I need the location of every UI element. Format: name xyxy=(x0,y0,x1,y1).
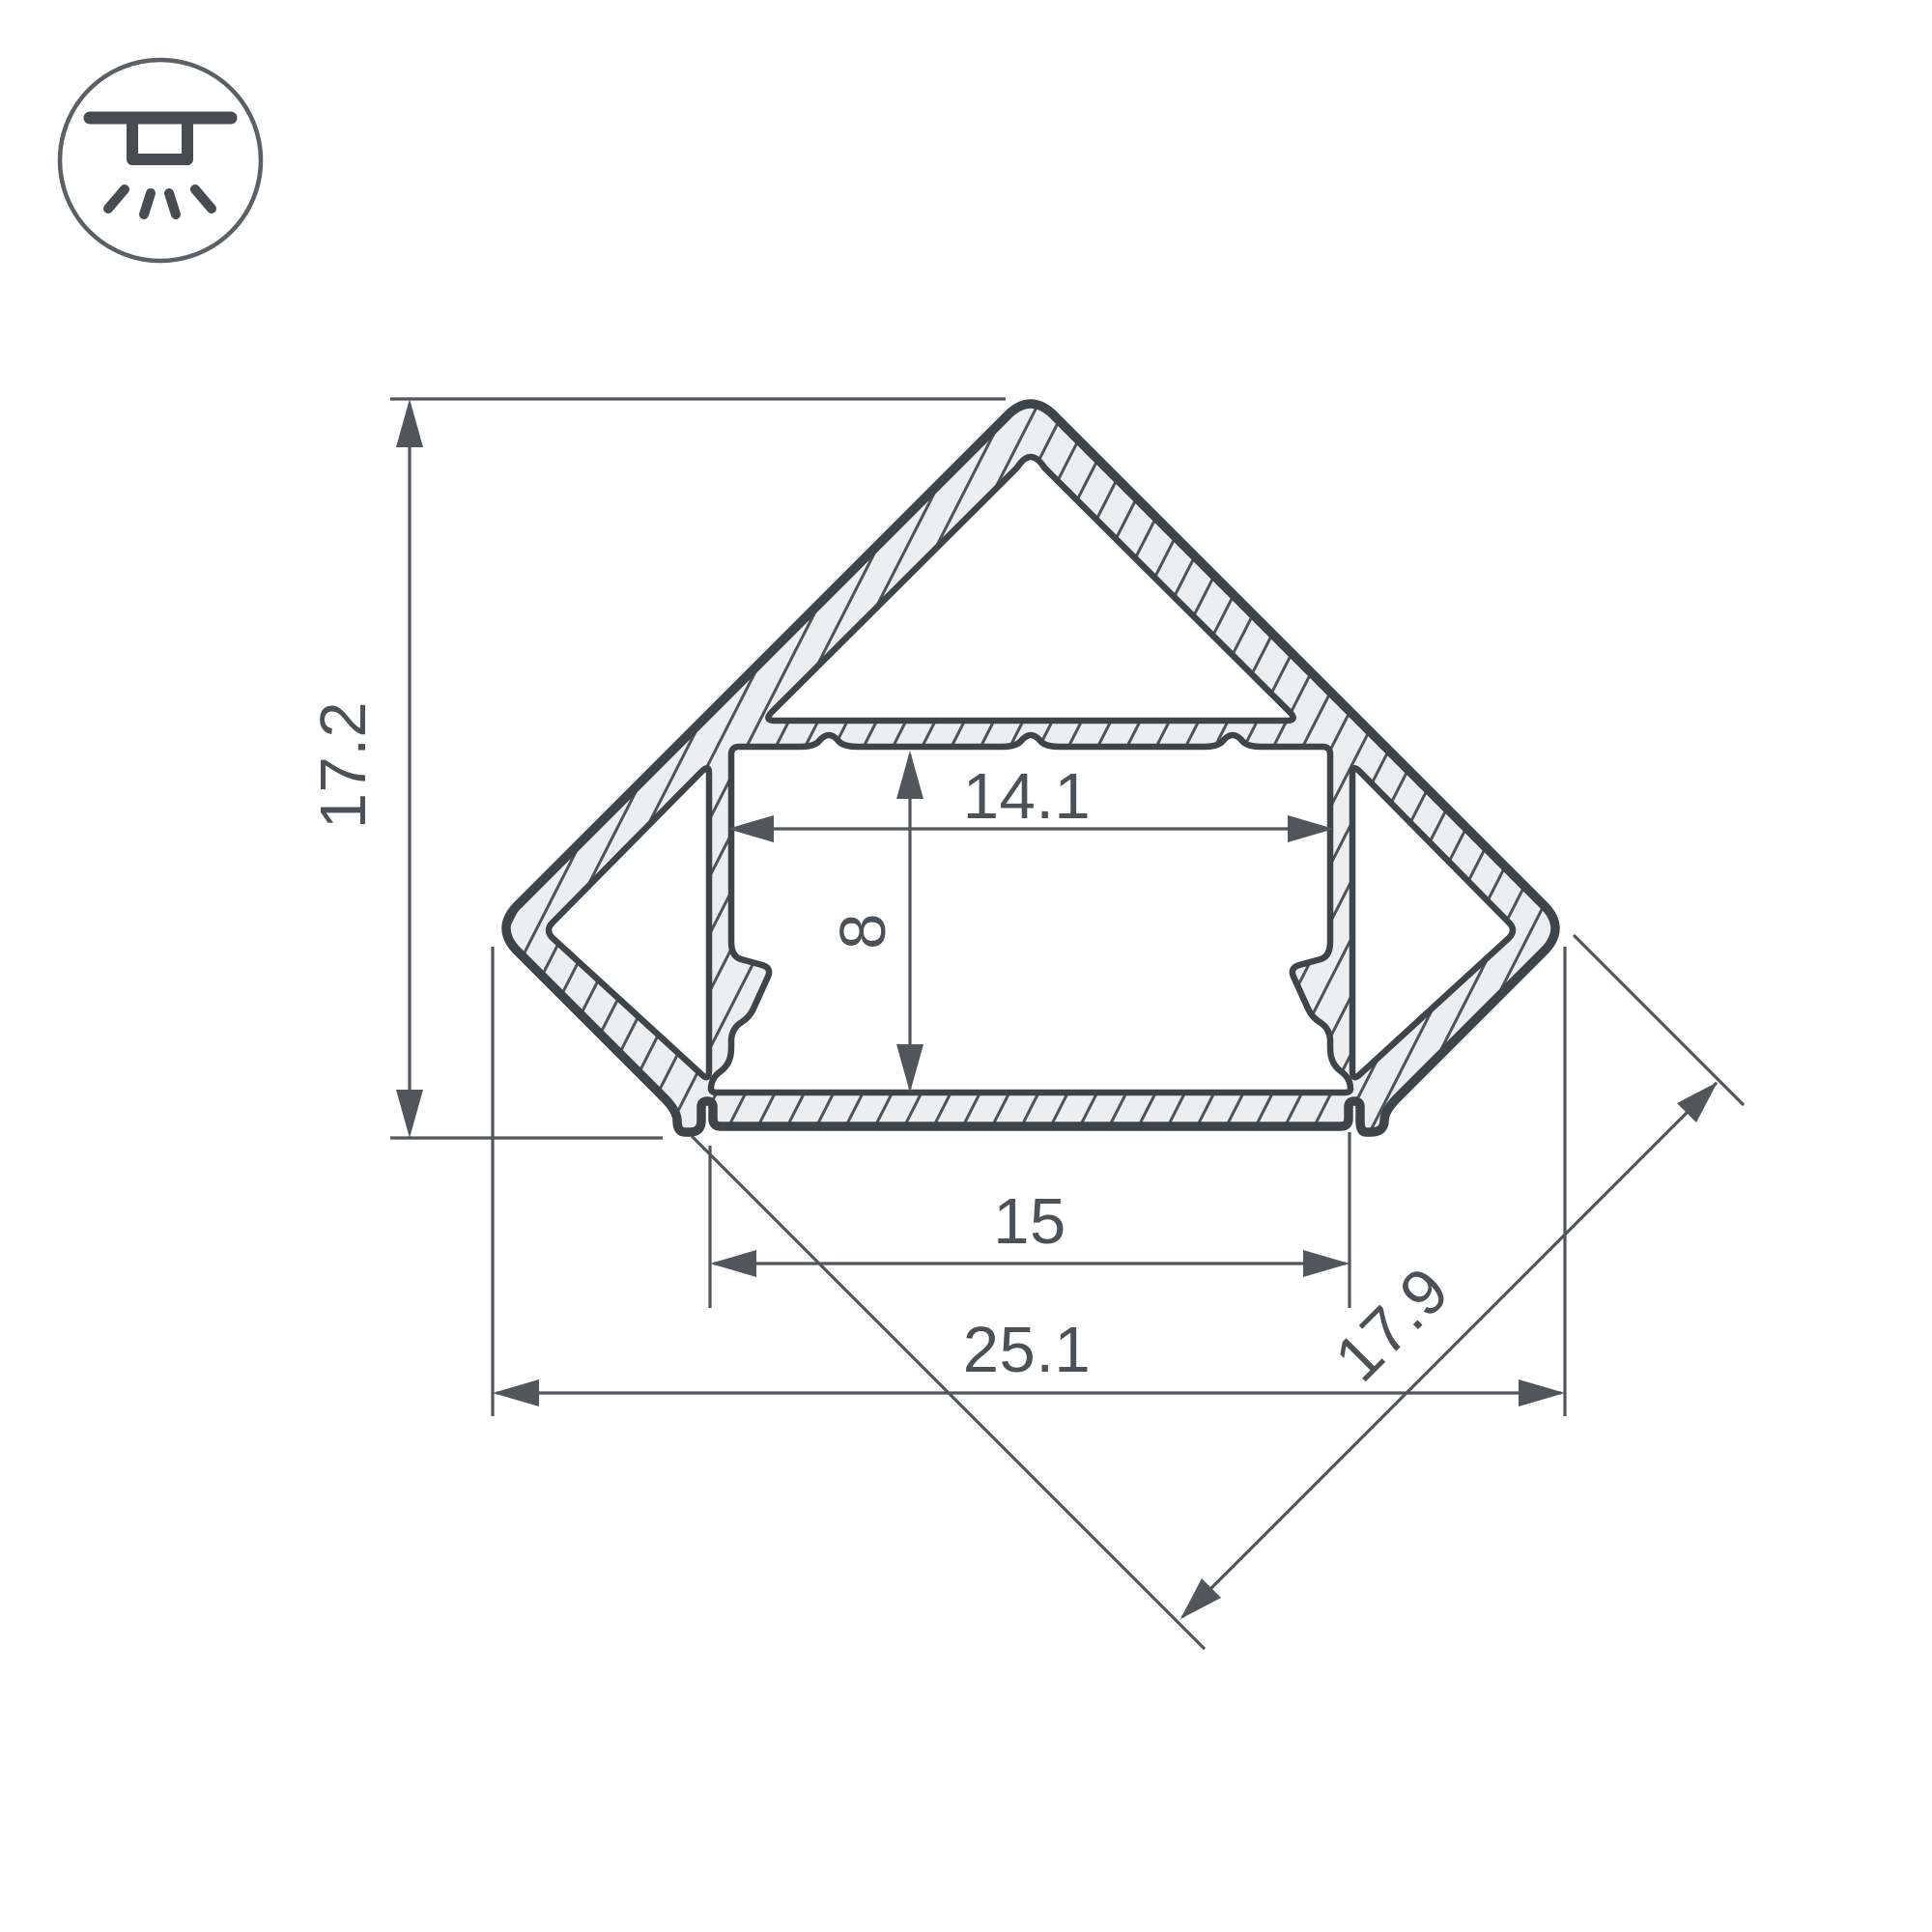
dim-label-overall-width: 25.1 xyxy=(963,1314,1091,1386)
dimension-bottom-width: 15 xyxy=(710,1132,1350,1308)
dimension-line xyxy=(1182,1083,1717,1617)
dim-label-side-width: 17.9 xyxy=(1321,1254,1463,1396)
dim-label-channel-inner-height: 8 xyxy=(827,913,899,950)
dimension-side-width: 17.9 xyxy=(692,935,1744,1649)
arrowhead xyxy=(1303,1250,1350,1277)
arrowhead xyxy=(710,1250,756,1277)
arrowhead xyxy=(396,1090,423,1138)
dim-label-bottom-width: 15 xyxy=(993,1185,1066,1258)
extension-line xyxy=(1574,935,1744,1105)
arrowhead xyxy=(1519,1379,1565,1406)
dimension-channel-inner-height: 8 xyxy=(827,751,923,1093)
arrowhead xyxy=(896,751,923,799)
dim-label-channel-inner-width: 14.1 xyxy=(963,760,1091,833)
dimensions-layer: 17.2 14.1 8 xyxy=(307,399,1744,1649)
recessed-ceiling-light-icon xyxy=(60,60,261,261)
dim-label-overall-height: 17.2 xyxy=(307,701,380,829)
drawing-page: 17.2 14.1 8 xyxy=(0,0,1932,1932)
arrowhead xyxy=(396,399,423,447)
arrowhead xyxy=(493,1379,539,1406)
arrowhead xyxy=(896,1044,923,1093)
dimension-channel-inner-width: 14.1 xyxy=(727,760,1334,842)
profile-drawing-canvas: 17.2 14.1 8 xyxy=(0,0,1932,1932)
